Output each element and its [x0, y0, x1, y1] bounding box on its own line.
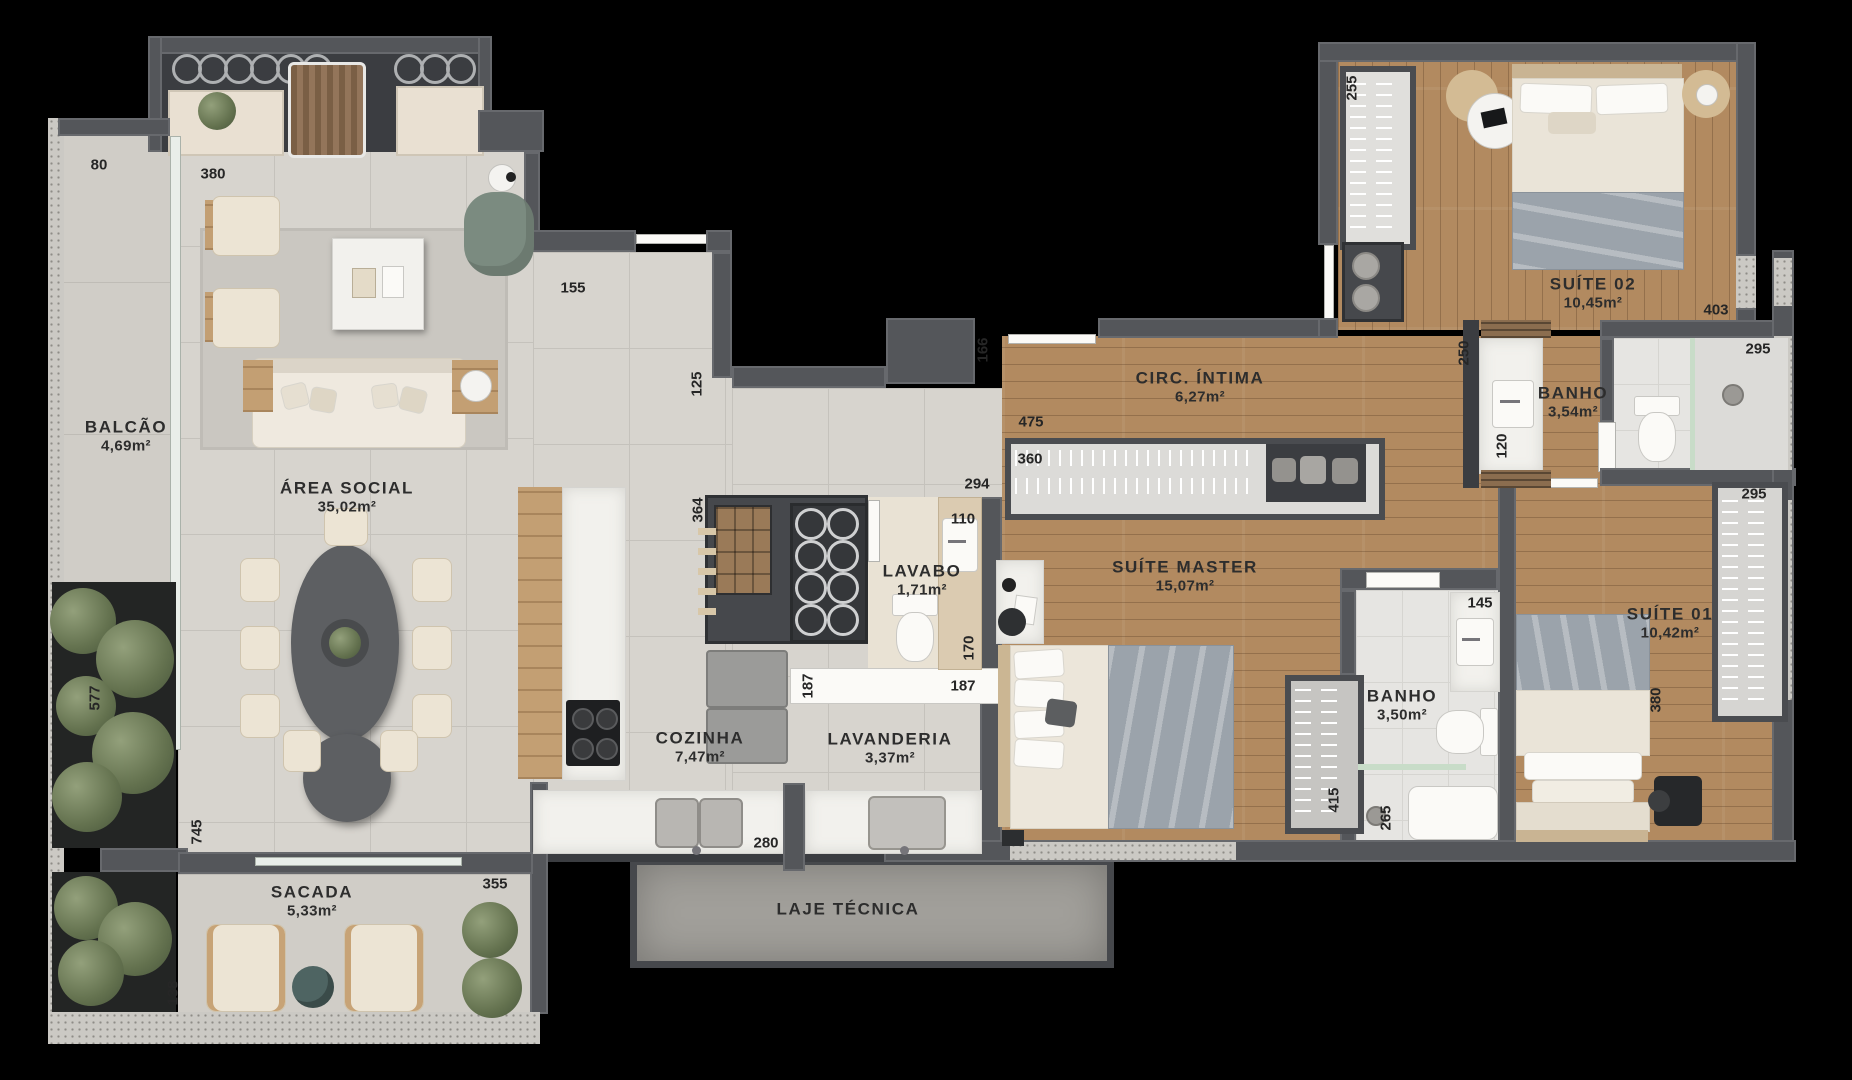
wine-slot-icon	[827, 604, 859, 636]
bag	[1272, 458, 1296, 482]
coffee-table	[332, 238, 424, 330]
floor-plan: BALCÃO 4,69m² ÁREA SOCIAL 35,02m² SACADA…	[0, 0, 1852, 1080]
suite02-wall-left-a	[1318, 42, 1338, 245]
dining-chair	[240, 558, 280, 602]
suite02-wall-left-b	[1318, 318, 1338, 338]
banho350-sink	[1456, 618, 1494, 666]
wardrobe-hangers	[1015, 450, 1255, 466]
vanity-towel-shelf	[1481, 320, 1551, 338]
dining-chair	[412, 626, 452, 670]
door-social-top	[636, 234, 708, 244]
room-label-banho-354: BANHO 3,54m²	[1538, 382, 1608, 421]
door-banho350	[1366, 572, 1440, 588]
burner-icon	[596, 708, 618, 730]
wardrobe-hangers	[1748, 500, 1764, 700]
burner-icon	[572, 708, 594, 730]
book	[382, 266, 404, 298]
banho354-wall-top	[1600, 320, 1792, 338]
room-label-lavabo: LAVABO 1,71m²	[883, 560, 962, 599]
sofa-pillow	[370, 382, 399, 409]
room-area: 10,45m²	[1550, 295, 1637, 313]
vanity-towel-shelf	[1481, 470, 1551, 488]
room-name: COZINHA	[656, 727, 745, 748]
dimension-label: 294	[964, 476, 989, 493]
dimension-label: 415	[1326, 787, 1343, 812]
dimension-label: 295	[1741, 486, 1766, 503]
dimension-label: 80	[91, 157, 108, 174]
social-wall-top-b	[706, 230, 732, 252]
room-label-lavanderia: LAVANDERIA 3,37m²	[828, 728, 953, 767]
door-circ-intima	[1008, 334, 1096, 344]
vanity-sink	[1492, 380, 1534, 428]
wine-slot-icon	[795, 508, 827, 540]
wardrobe-hangers	[1376, 76, 1392, 228]
armchair-frame	[205, 292, 213, 342]
door-banho354	[1598, 422, 1616, 472]
room-name: LAJE TÉCNICA	[777, 898, 920, 919]
wine-slot-icon	[795, 604, 827, 636]
dimension-label: 380	[200, 166, 225, 183]
dimension-label: 295	[1745, 341, 1770, 358]
faucet-icon	[1500, 400, 1520, 403]
circ-wall-top	[1098, 318, 1332, 338]
bed-master-blanket	[1108, 645, 1234, 829]
room-area: 15,07m²	[1112, 578, 1258, 596]
bathtub	[1408, 786, 1498, 840]
dining-chair	[240, 694, 280, 738]
room-label-suite-01: SUÍTE 01 10,42m²	[1627, 603, 1714, 642]
window-suite02-right	[1736, 256, 1756, 308]
dimension-label: 187	[950, 678, 975, 695]
refrigerator	[706, 650, 788, 708]
book	[352, 268, 376, 298]
room-area: 35,02m²	[280, 499, 414, 517]
sliding-door-sacada	[255, 857, 462, 866]
burner-icon	[596, 738, 618, 760]
room-area: 3,37m²	[828, 750, 953, 768]
hanger-ring-icon	[446, 54, 476, 84]
room-label-laje-tecnica: LAJE TÉCNICA	[777, 898, 920, 919]
dimension-label: 145	[1467, 595, 1492, 612]
cabinet-handle	[698, 568, 716, 575]
banho350-wall-left-a	[1340, 590, 1356, 675]
dimension-label: 577	[87, 685, 104, 710]
potted-plant-icon	[462, 902, 518, 958]
dining-chair	[412, 558, 452, 602]
room-name: BANHO	[1538, 382, 1608, 403]
dimension-label: 250	[1456, 340, 1473, 365]
dimension-label: 280	[753, 835, 778, 852]
room-name: SUÍTE MASTER	[1112, 556, 1258, 577]
palm-plant-icon	[58, 940, 124, 1006]
wine-slot-icon	[795, 572, 827, 604]
bag	[1300, 456, 1326, 484]
bed-pillow	[1595, 83, 1668, 115]
bed-pillow	[1013, 738, 1065, 769]
cabinet-handle	[698, 588, 716, 595]
dimension-label: 110	[951, 511, 975, 528]
bed-pillow	[1524, 752, 1642, 780]
sofa-pillow	[308, 386, 338, 414]
kitchen-wall-right-v	[712, 252, 732, 378]
dimension-label: 355	[482, 876, 507, 893]
toilet-bowl	[1638, 412, 1676, 462]
dimension-label: 364	[690, 497, 707, 522]
circ-wall-block	[886, 318, 975, 384]
toilet-bowl	[1436, 710, 1484, 754]
shower-glass	[1690, 338, 1695, 470]
kitchen-pillar	[783, 783, 805, 871]
cabinet-handle	[698, 528, 716, 535]
wine-slot-icon	[827, 572, 859, 604]
bed-pillow-accent	[1548, 112, 1596, 134]
armchair-frame	[205, 200, 213, 250]
bistro-chair	[283, 730, 321, 772]
room-name: LAVABO	[883, 560, 962, 581]
room-area: 6,27m²	[1136, 389, 1265, 407]
wine-slot-icon	[827, 540, 859, 572]
dimension-label: 380	[1648, 687, 1665, 712]
dimension-label: 120	[1494, 433, 1511, 458]
room-name: SUÍTE 02	[1550, 273, 1637, 294]
bed-pillow-accent	[1044, 698, 1077, 728]
bed-pillow	[1519, 83, 1592, 115]
shower-head-icon	[1722, 384, 1744, 406]
bed-suite01-sheet	[1516, 690, 1650, 756]
balcony-wall-stub	[100, 848, 188, 872]
stone-edge-bottom	[48, 1012, 540, 1044]
wardrobe-hangers	[1015, 478, 1255, 494]
window-right-1	[1774, 258, 1792, 306]
social-wall-top-a	[524, 230, 636, 252]
table-lamp-icon	[1696, 84, 1718, 106]
bed-pillow	[1013, 648, 1065, 679]
wardrobe-hangers	[1295, 685, 1311, 812]
room-name: SUÍTE 01	[1627, 603, 1714, 624]
bed-suite01-foot	[1516, 802, 1650, 832]
room-label-circ-intima: CIRC. ÍNTIMA 6,27m²	[1136, 367, 1265, 406]
desk-decor	[1002, 578, 1016, 592]
room-name: LAVANDERIA	[828, 728, 953, 749]
room-label-banho-350: BANHO 3,50m²	[1367, 685, 1437, 724]
dimension-label: 187	[800, 673, 817, 698]
kitchen-wall-h	[732, 366, 886, 388]
bed-suite01-headboard	[1516, 830, 1648, 842]
nightstand	[1002, 830, 1024, 846]
palm-plant-icon	[52, 762, 122, 832]
room-name: BANHO	[1367, 685, 1437, 706]
lounge-chair	[464, 192, 534, 276]
floor-lamp-icon	[506, 172, 516, 182]
side-table-tray	[460, 370, 492, 402]
dimension-label: 360	[1017, 451, 1042, 468]
laundry-sink	[868, 796, 946, 850]
potted-plant-icon	[462, 958, 522, 1018]
room-name: BALCÃO	[85, 416, 167, 437]
balcony-wall-top	[58, 118, 170, 136]
bag	[1332, 458, 1358, 484]
dimension-label: 170	[961, 635, 978, 660]
pouf	[292, 966, 334, 1008]
dimension-label: 475	[1018, 414, 1043, 431]
room-area: 3,50m²	[1367, 707, 1437, 725]
room-name: ÁREA SOCIAL	[280, 477, 414, 498]
room-label-area-social: ÁREA SOCIAL 35,02m²	[280, 477, 414, 516]
dimension-label: 166	[975, 337, 992, 362]
room-label-suite-master: SUÍTE MASTER 15,07m²	[1112, 556, 1258, 595]
outdoor-armchair	[344, 924, 424, 1012]
dimension-label: 255	[1344, 75, 1361, 100]
dimension-label: 745	[189, 819, 206, 844]
faucet-icon	[948, 540, 966, 543]
dimension-label: 265	[1378, 805, 1395, 830]
shower-glass	[1358, 764, 1466, 770]
wine-slot-icon	[795, 540, 827, 572]
room-area: 10,42m²	[1627, 625, 1714, 643]
firewood-niche	[288, 62, 366, 158]
dimension-label: 125	[689, 371, 706, 396]
suite02-wall-top	[1318, 42, 1756, 62]
room-label-cozinha: COZINHA 7,47m²	[656, 727, 745, 766]
armchair	[212, 288, 280, 348]
towel-roll	[1352, 284, 1380, 312]
dimension-label: 155	[560, 280, 585, 297]
wardrobe-hangers	[1722, 500, 1738, 700]
suite01-wall-left	[1498, 482, 1516, 862]
armchair	[212, 196, 280, 256]
bed-suite02-blanket	[1512, 192, 1684, 270]
faucet-icon	[900, 846, 909, 855]
hall-shelf	[396, 86, 484, 156]
room-area: 5,33m²	[271, 903, 353, 921]
toilet-bowl	[896, 612, 934, 662]
bed-pillow	[1532, 780, 1634, 804]
cabinet-handle	[698, 608, 716, 615]
outdoor-armchair	[206, 924, 286, 1012]
centerpiece-plant-icon	[329, 627, 361, 659]
bed-suite02-headboard	[1512, 64, 1682, 78]
wine-slot-icon	[827, 508, 859, 540]
room-area: 1,71m²	[883, 582, 962, 600]
bistro-chair	[380, 730, 418, 772]
suite02-wall-right	[1736, 42, 1756, 256]
cabinet-handle	[698, 548, 716, 555]
hall-wall-ext	[478, 110, 544, 152]
dining-chair	[240, 626, 280, 670]
sofa-side-table	[243, 360, 273, 412]
bed-master-headboard	[998, 645, 1010, 827]
room-name: SACADA	[271, 881, 353, 902]
room-area: 7,47m²	[656, 749, 745, 767]
plant-icon	[198, 92, 236, 130]
room-name: CIRC. ÍNTIMA	[1136, 367, 1265, 388]
island-cabinet	[518, 487, 562, 779]
door-suite02	[1324, 245, 1334, 319]
faucet-icon	[692, 846, 701, 855]
kitchen-sink	[699, 798, 743, 848]
dimension-label: 138	[165, 980, 182, 1005]
desk-chair	[998, 608, 1026, 636]
dining-chair	[412, 694, 452, 738]
burner-icon	[572, 738, 594, 760]
faucet-icon	[1462, 638, 1480, 641]
window-master-bottom	[1010, 842, 1236, 860]
coffee-niche	[714, 505, 772, 595]
hall-wall-top	[148, 36, 492, 54]
dimension-label: 403	[1703, 302, 1728, 319]
towel-roll	[1352, 252, 1380, 280]
door-lavabo	[868, 500, 880, 562]
room-label-sacada: SACADA 5,33m²	[271, 881, 353, 920]
room-label-balcao: BALCÃO 4,69m²	[85, 416, 167, 455]
room-area: 4,69m²	[85, 438, 167, 456]
room-area: 3,54m²	[1538, 404, 1608, 422]
desk-chair	[1648, 790, 1670, 812]
kitchen-sink	[655, 798, 699, 848]
room-label-suite-02: SUÍTE 02 10,45m²	[1550, 273, 1637, 312]
